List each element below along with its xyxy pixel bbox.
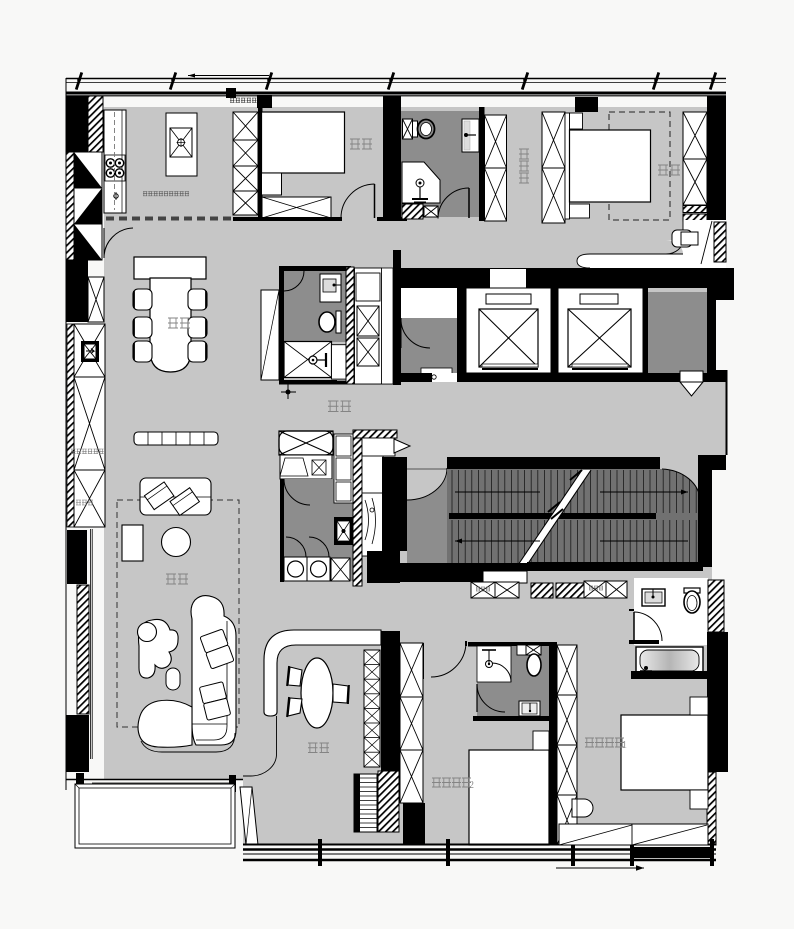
svg-text:2: 2 bbox=[469, 780, 474, 791]
svg-text:1: 1 bbox=[622, 740, 627, 751]
